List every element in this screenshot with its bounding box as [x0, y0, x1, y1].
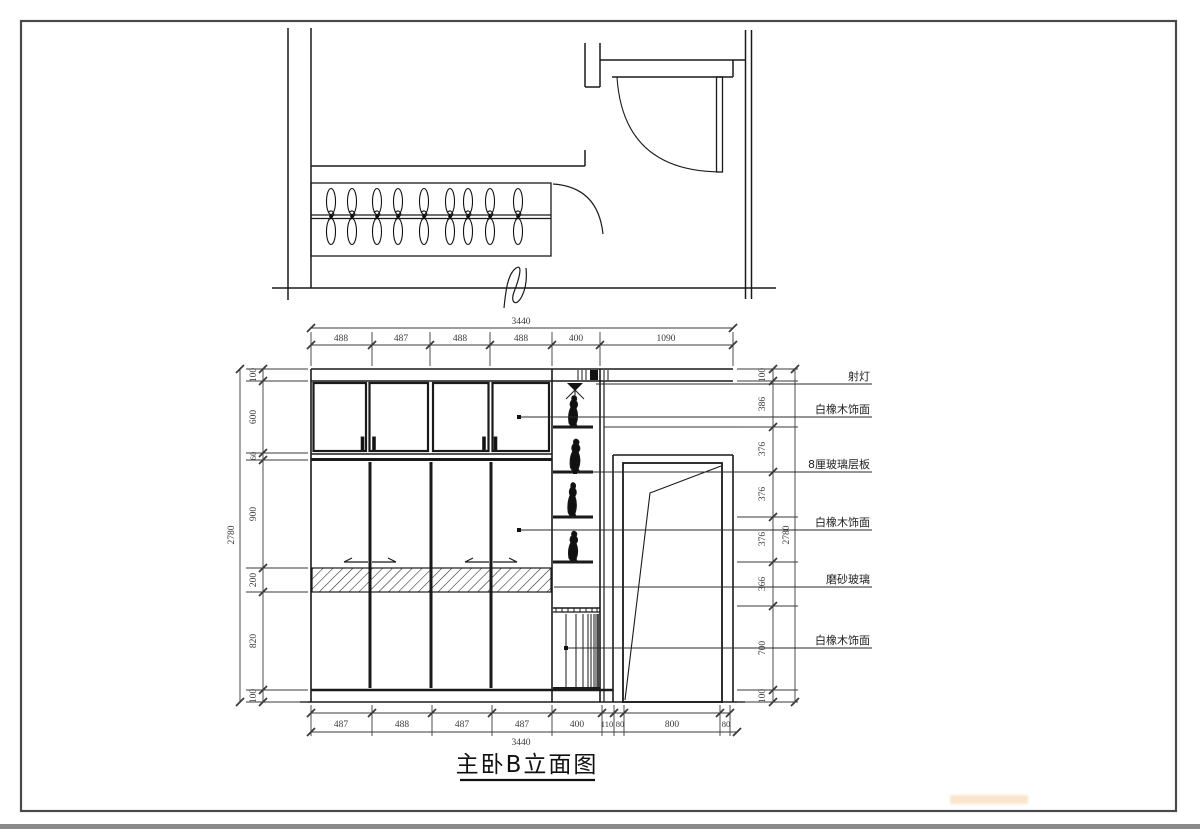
watermark [950, 795, 1028, 804]
dim-label: 376 [758, 532, 768, 547]
dim-top-total: 3440 [512, 317, 531, 327]
title-block: 主卧B立面图 [456, 752, 599, 780]
dim-label: 600 [249, 410, 259, 425]
dim-label: 100 [758, 368, 768, 383]
callout-spotlight: 射灯 [848, 369, 870, 383]
dim-label: 400 [569, 334, 584, 344]
dim-label: 400 [570, 720, 585, 730]
dim-bottom-total: 3440 [512, 738, 531, 748]
dim-label: 487 [394, 334, 409, 344]
dim-label: 820 [249, 634, 259, 649]
dim-label: 488 [395, 720, 410, 730]
dim-label: 100 [758, 689, 768, 704]
dim-label: 60 [248, 452, 258, 461]
dim-label: 386 [758, 397, 768, 412]
callout-glass-shelf: 8厘玻璃层板 [808, 457, 870, 471]
dim-label: 487 [515, 720, 530, 730]
dim-label: 488 [453, 334, 468, 344]
spotlight-strip [578, 370, 608, 380]
dim-right-total: 2780 [782, 525, 792, 544]
dim-label: 1090 [657, 334, 676, 344]
leader-dot [564, 646, 568, 650]
drawing-title: 主卧B立面图 [456, 752, 599, 778]
leader-dot [517, 415, 521, 419]
dim-label: 376 [758, 442, 768, 457]
cad-canvas: 3440 488 487 488 488 400 1090 487 488 48… [0, 0, 1200, 834]
dim-label: 80 [722, 719, 731, 729]
leader-dot [517, 528, 521, 532]
callout-oak-veneer-2: 白橡木饰面 [815, 515, 870, 529]
drawing-page: 3440 488 487 488 488 400 1090 487 488 48… [0, 0, 1200, 834]
dim-label: 80 [616, 719, 625, 729]
dim-label: 800 [665, 720, 680, 730]
callout-oak-veneer-1: 白橡木饰面 [815, 402, 870, 416]
dim-label: 376 [758, 487, 768, 502]
dim-label: 100 [249, 368, 259, 383]
dim-label: 200 [249, 573, 259, 588]
dim-label: 488 [334, 334, 349, 344]
dim-label: 487 [334, 720, 349, 730]
dim-label: 110 [601, 719, 613, 729]
leader-dot [573, 470, 577, 474]
dim-label: 366 [758, 577, 768, 592]
callout-oak-veneer-3: 白橡木饰面 [815, 633, 870, 647]
dim-label: 900 [249, 507, 259, 522]
dim-label: 100 [249, 689, 259, 704]
dim-label: 488 [514, 334, 529, 344]
callout-frosted-glass: 磨砂玻璃 [826, 572, 870, 586]
dim-left-total: 2780 [227, 525, 237, 544]
dim-label: 487 [455, 720, 470, 730]
